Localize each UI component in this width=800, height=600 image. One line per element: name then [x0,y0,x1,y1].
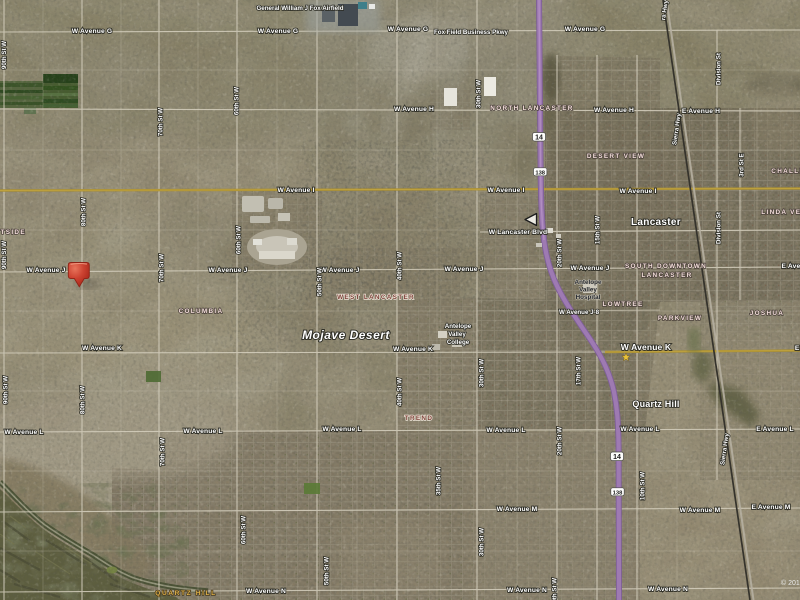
svg-text:SOUTH DOWNTOWN: SOUTH DOWNTOWN [625,263,707,270]
svg-text:40th St W: 40th St W [397,252,404,280]
svg-text:60th St W: 60th St W [241,516,248,544]
svg-text:Division St: Division St [716,212,723,244]
svg-text:E Avenue J: E Avenue J [781,263,800,270]
svg-text:Antelope: Antelope [445,323,472,330]
svg-text:W Avenue J: W Avenue J [571,265,610,272]
svg-text:CHALLENGER: CHALLENGER [771,168,800,175]
svg-text:LINDA VERDE: LINDA VERDE [761,209,800,216]
svg-text:W Avenue L: W Avenue L [620,426,659,433]
svg-text:3rd St E: 3rd St E [739,153,746,176]
svg-text:W Avenue H: W Avenue H [594,107,634,114]
svg-text:20th St W: 20th St W [552,578,559,600]
svg-text:LANCASTER: LANCASTER [641,272,692,279]
svg-text:W Avenue I: W Avenue I [619,188,656,195]
svg-text:W Avenue G: W Avenue G [72,28,112,35]
svg-text:© 2017 HERE: © 2017 HERE [781,579,800,587]
svg-text:E Avenue L: E Avenue L [756,426,793,433]
svg-text:E Avenue H: E Avenue H [682,108,720,115]
svg-text:NORTH LANCASTER: NORTH LANCASTER [490,105,573,112]
svg-text:TREND: TREND [405,415,434,422]
svg-text:138: 138 [613,490,623,496]
svg-text:90th St W: 90th St W [3,376,10,404]
svg-text:30th St W: 30th St W [476,80,483,108]
svg-text:E Avenue M: E Avenue M [752,504,791,511]
svg-text:WESTSIDE: WESTSIDE [0,229,26,236]
svg-text:WEST LANCASTER: WEST LANCASTER [337,294,415,301]
svg-text:W Avenue L: W Avenue L [322,426,361,433]
svg-text:General William J Fox Airfield: General William J Fox Airfield [256,5,343,12]
svg-text:138: 138 [535,170,545,176]
svg-text:60th St W: 60th St W [236,226,243,254]
svg-text:90th St W: 90th St W [1,241,8,269]
svg-text:17th St W: 17th St W [576,357,583,385]
svg-text:W Avenue H: W Avenue H [394,106,434,113]
svg-text:W Avenue M: W Avenue M [680,507,721,514]
svg-text:50th St W: 50th St W [324,557,331,585]
svg-text:W Avenue L: W Avenue L [486,427,525,434]
svg-text:70th St W: 70th St W [159,254,166,282]
svg-text:Quartz Hill: Quartz Hill [632,399,679,409]
svg-text:Valley: Valley [579,287,597,294]
svg-text:70th St W: 70th St W [160,438,167,466]
svg-text:60th St W: 60th St W [234,87,241,115]
svg-text:College: College [447,339,470,346]
svg-text:W Lancaster Blvd: W Lancaster Blvd [489,229,548,236]
svg-text:W Avenue M: W Avenue M [497,506,538,513]
svg-text:80th St W: 80th St W [80,386,87,414]
svg-text:W Avenue G: W Avenue G [258,28,298,35]
svg-text:W Avenue J: W Avenue J [209,267,248,274]
svg-text:Antelope: Antelope [575,279,602,286]
svg-text:JOSHUA: JOSHUA [750,310,784,317]
svg-text:W Avenue J: W Avenue J [321,267,360,274]
svg-text:Mojave Desert: Mojave Desert [302,328,390,342]
svg-text:Division St: Division St [716,53,723,85]
svg-text:W Avenue L: W Avenue L [4,429,43,436]
svg-text:W Avenue L: W Avenue L [183,428,222,435]
svg-text:14: 14 [613,454,621,461]
svg-text:20th St W: 20th St W [557,239,564,267]
svg-text:90th St W: 90th St W [1,41,8,69]
svg-text:W Avenue N: W Avenue N [648,586,688,593]
svg-text:COLUMBIA: COLUMBIA [179,308,224,315]
svg-text:50th St W: 50th St W [317,268,324,296]
svg-text:PARKVIEW: PARKVIEW [658,315,702,322]
svg-text:W Avenue K: W Avenue K [393,346,433,353]
svg-text:10th St W: 10th St W [640,472,647,500]
svg-text:20th St W: 20th St W [557,427,564,455]
svg-text:QUARTZ HILL: QUARTZ HILL [155,590,217,597]
svg-text:E Avenue K: E Avenue K [795,345,800,352]
svg-text:W Avenue N: W Avenue N [507,587,547,594]
svg-text:W Avenue J: W Avenue J [27,267,66,274]
svg-text:W Avenue N: W Avenue N [246,588,286,595]
svg-text:30th St W: 30th St W [479,359,486,387]
svg-text:DESERT VIEW: DESERT VIEW [587,153,645,160]
svg-text:Lancaster: Lancaster [631,217,681,228]
svg-text:W Avenue J: W Avenue J [445,266,484,273]
svg-text:LOWTREE: LOWTREE [602,301,643,308]
svg-text:Hospital: Hospital [576,294,601,301]
svg-text:30th St W: 30th St W [479,528,486,556]
svg-text:40th St W: 40th St W [397,378,404,406]
svg-text:W Avenue G: W Avenue G [565,26,605,33]
svg-text:W Avenue K: W Avenue K [621,342,672,352]
svg-text:80th St W: 80th St W [81,198,88,226]
svg-text:W Avenue J-8: W Avenue J-8 [559,309,600,316]
svg-text:W Avenue G: W Avenue G [388,26,428,33]
svg-text:70th St W: 70th St W [158,108,165,136]
svg-text:W Avenue I: W Avenue I [487,187,524,194]
svg-text:15th St W: 15th St W [595,216,602,244]
svg-text:W Avenue I: W Avenue I [277,187,314,194]
svg-text:Fox Field Business Pkwy: Fox Field Business Pkwy [434,29,508,36]
svg-text:14: 14 [535,135,543,142]
svg-text:Valley: Valley [448,331,466,338]
svg-text:W Avenue K: W Avenue K [82,345,122,352]
svg-text:35th St W: 35th St W [436,467,443,495]
